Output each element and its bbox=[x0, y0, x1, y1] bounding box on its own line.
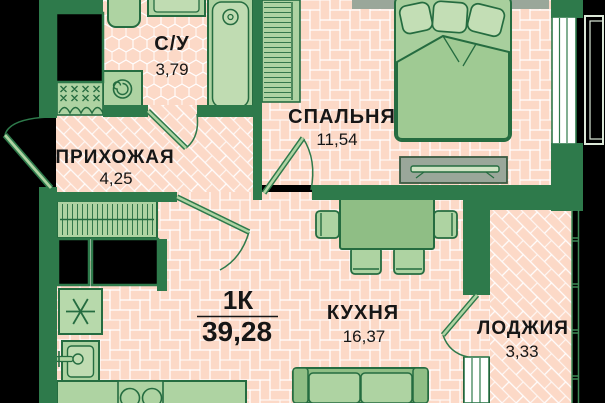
room-label-bathroom: С/У bbox=[154, 33, 189, 55]
room-area-loggia: 3,33 bbox=[505, 342, 538, 361]
wardrobe bbox=[262, 0, 300, 102]
room-area-bedroom: 11,54 bbox=[316, 130, 357, 149]
room-area-kitchen: 16,37 bbox=[343, 327, 386, 346]
room-label-hallway: ПРИХОЖАЯ bbox=[55, 147, 174, 168]
room-area-bathroom: 3,79 bbox=[155, 60, 188, 79]
loggia-floor bbox=[490, 200, 572, 403]
toilet bbox=[108, 0, 140, 27]
hall-cabinet bbox=[57, 82, 103, 115]
bathtub bbox=[208, 0, 253, 112]
washing-machine bbox=[103, 71, 142, 107]
kitchen-sink bbox=[56, 341, 99, 382]
floor-plan: С/У 3,79 ПРИХОЖАЯ 4,25 СПАЛЬНЯ 11,54 КУХ… bbox=[0, 0, 605, 403]
refrigerator bbox=[59, 289, 102, 334]
room-label-bedroom: СПАЛЬНЯ bbox=[288, 106, 396, 128]
chair bbox=[394, 247, 424, 274]
sofa bbox=[293, 368, 428, 403]
room-area-hallway: 4,25 bbox=[99, 169, 132, 188]
hall-closet bbox=[57, 201, 157, 238]
apartment-type: 1К bbox=[223, 285, 253, 315]
stove bbox=[118, 381, 163, 403]
apartment-total-area: 39,28 bbox=[202, 316, 272, 347]
chair bbox=[434, 211, 457, 238]
wash-basin bbox=[148, 0, 205, 16]
chair bbox=[316, 211, 339, 238]
double-bed bbox=[395, 0, 511, 141]
tv-stand bbox=[400, 157, 507, 183]
room-label-kitchen: КУХНЯ bbox=[327, 302, 399, 324]
bedroom-window bbox=[552, 17, 576, 144]
room-label-loggia: ЛОДЖИЯ bbox=[477, 318, 569, 339]
chair bbox=[351, 247, 381, 274]
loggia-window-block bbox=[464, 357, 489, 403]
